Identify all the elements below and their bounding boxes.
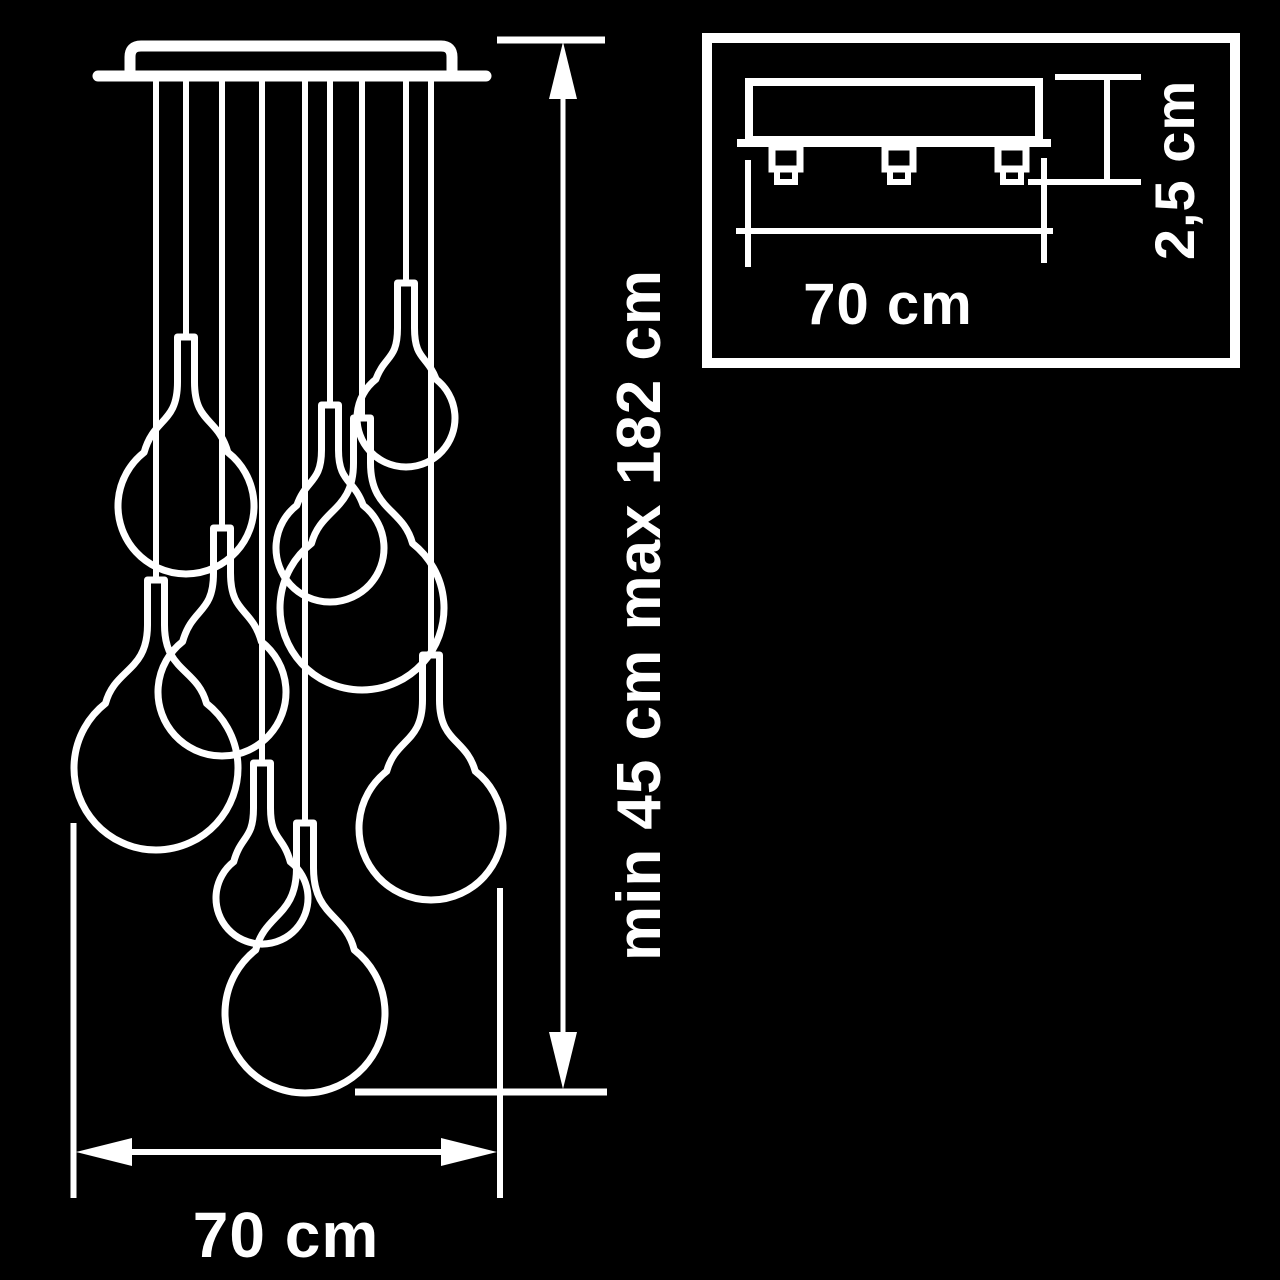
height-dimension-label: min 45 cm max 182 cm [605, 269, 674, 961]
dimension-diagram: min 45 cm max 182 cm 70 cm [0, 0, 1280, 1280]
width-dimension-label: 70 cm [193, 1199, 379, 1271]
inset-thickness-dimension: 2,5 cm [1028, 77, 1206, 260]
arrow-right [441, 1138, 497, 1166]
cord-connector [998, 147, 1026, 182]
cord-connector [772, 147, 800, 182]
inset-thickness-label: 2,5 cm [1143, 80, 1206, 260]
arrow-left [76, 1138, 132, 1166]
arrow-up [549, 42, 577, 99]
diagram-svg: min 45 cm max 182 cm 70 cm [0, 0, 1280, 1280]
pendant-globe [225, 823, 385, 1093]
connector-tip [1003, 169, 1021, 182]
cords [156, 78, 431, 825]
arrow-down [549, 1032, 577, 1089]
pendant-globe [74, 580, 238, 850]
connector-body [885, 147, 913, 169]
connector-tip [777, 169, 795, 182]
inset-plate-body [749, 82, 1039, 140]
inset-connectors [772, 147, 1026, 182]
pendant-globe [359, 655, 503, 900]
chandelier-drawing [74, 46, 503, 1093]
height-dimension: min 45 cm max 182 cm [355, 40, 674, 1092]
pendants [74, 283, 503, 1093]
mounting-plate-inset: 70 cm 2,5 cm [707, 38, 1235, 363]
width-dimension: 70 cm [74, 823, 501, 1271]
inset-width-label: 70 cm [803, 272, 972, 337]
connector-body [772, 147, 800, 169]
connector-tip [890, 169, 908, 182]
connector-body [998, 147, 1026, 169]
cord-connector [885, 147, 913, 182]
